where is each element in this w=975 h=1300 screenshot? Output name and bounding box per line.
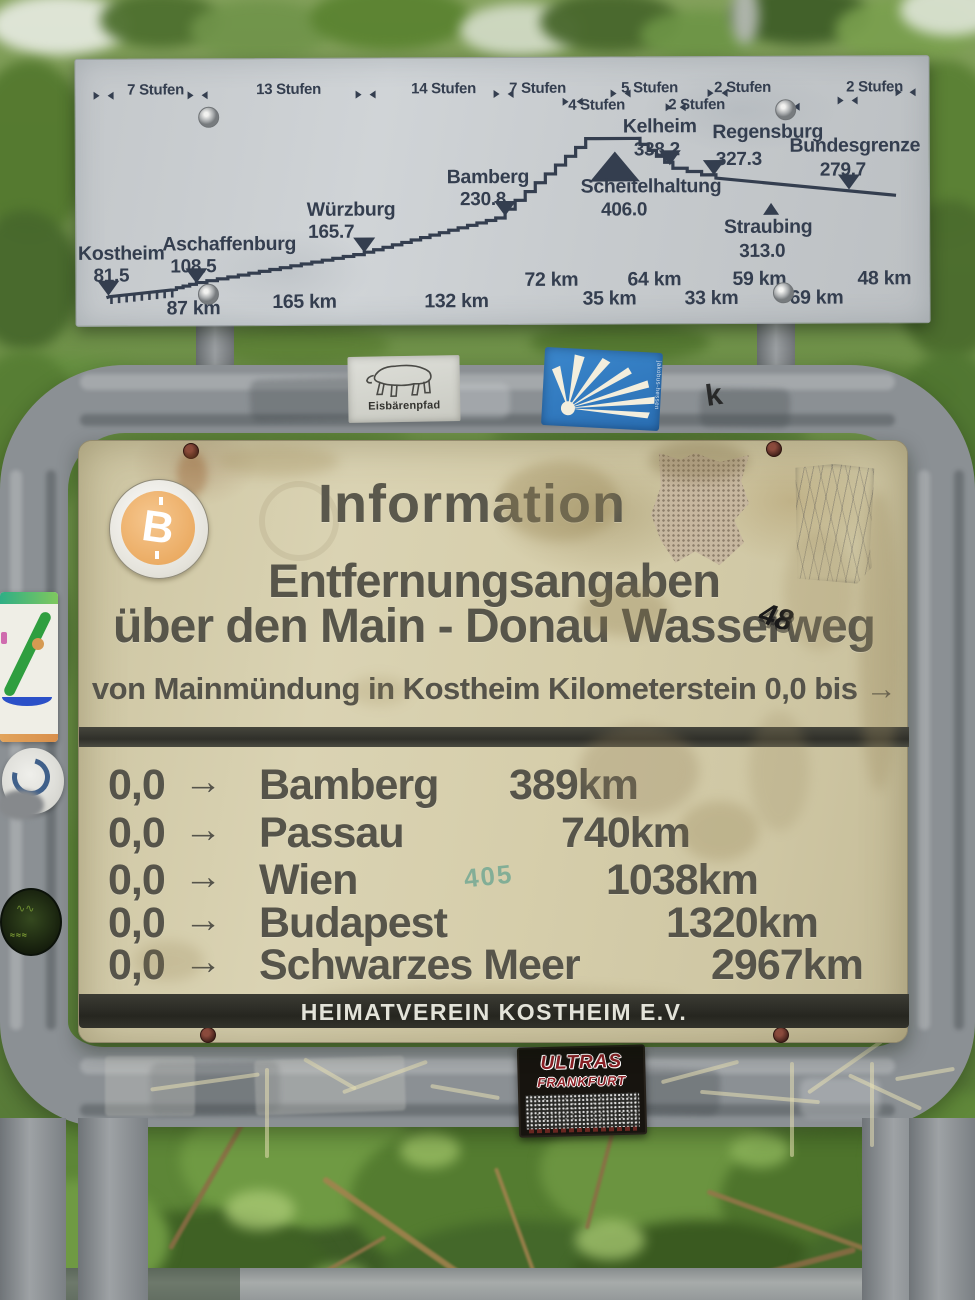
city-name: Bundesgrenze	[789, 134, 920, 157]
eisbaerenpfad-sticker: Eisbärenpfad	[347, 355, 460, 423]
arrow-icon: →	[184, 809, 221, 852]
city-marker-icon	[763, 203, 779, 215]
sign-leg-left	[78, 1118, 148, 1300]
elevation-profile-sign: 7 Stufen13 Stufen14 Stufen7 Stufen4 Stuf…	[74, 55, 930, 327]
outer-post-right	[909, 1118, 975, 1300]
city-elevation: 108.5	[170, 256, 217, 277]
information-sign: B Information Entfernungsangaben über de…	[78, 440, 908, 1043]
stufen-label: 7 Stufen	[127, 81, 184, 98]
sign-bolt	[773, 283, 793, 303]
distance-km-label: 69 km	[790, 287, 844, 309]
trail-marker-sticker	[0, 592, 58, 742]
green-stamp: 405	[463, 859, 515, 895]
stufen-label: 4 Stufen	[568, 96, 625, 113]
torn-area	[0, 790, 44, 820]
city-name: Kelheim	[623, 115, 697, 137]
distance-value: 389km	[509, 761, 638, 810]
sign-bolt	[776, 100, 796, 120]
arrow-icon: →	[184, 761, 221, 804]
distance-km-label: 72 km	[524, 269, 578, 291]
city-marker-icon	[353, 238, 375, 253]
footer-band: HEIMATVEREIN KOSTHEIM E.V.	[79, 994, 909, 1028]
table-row: 0,0→Bamberg389km	[79, 761, 909, 807]
sticker-squiggle: ∿∿	[16, 902, 34, 915]
crowd-photo	[525, 1093, 640, 1130]
distance-km-label: 132 km	[424, 290, 488, 312]
section-marker-icon	[94, 92, 100, 100]
section-marker-icon	[108, 92, 114, 100]
km-zero-value: 0,0	[108, 941, 165, 990]
sign-bolt	[199, 107, 219, 127]
stufen-label: 2 Stufen	[668, 96, 725, 113]
destination-name: Bamberg	[259, 761, 438, 810]
foliage-blob	[400, 1132, 460, 1168]
photo-stage: 7 Stufen13 Stufen14 Stufen7 Stufen4 Stuf…	[0, 0, 975, 1300]
stufen-label: 14 Stufen	[411, 80, 476, 97]
city-elevation: 406.0	[601, 199, 647, 220]
table-row: 0,0→Passau740km	[79, 809, 909, 855]
stufen-label: 13 Stufen	[256, 81, 321, 98]
table-row: 0,0→Budapest1320km	[79, 899, 909, 945]
table-row: 0,0→Schwarzes Meer2967km	[79, 941, 909, 987]
ultras-line2: FRANKFURT	[520, 1072, 644, 1090]
city-elevation: 338.2	[634, 139, 680, 160]
city-name: Würzburg	[307, 198, 396, 220]
km-zero-value: 0,0	[108, 856, 165, 905]
city-elevation: 165.7	[308, 222, 354, 243]
destination-name: Passau	[259, 809, 404, 858]
city-name: Aschaffenburg	[162, 233, 296, 256]
green-swoosh	[2, 610, 52, 698]
foliage-blob	[225, 1190, 295, 1230]
distance-km-label: 48 km	[857, 267, 911, 289]
section-marker-icon	[188, 91, 194, 99]
city-name: Scheitelhaltung	[581, 175, 722, 198]
distance-km-label: 33 km	[685, 287, 739, 309]
section-marker-icon	[494, 90, 500, 98]
trail-sticker-band	[0, 592, 58, 604]
distance-km-label: 165 km	[272, 291, 336, 313]
km-zero-value: 0,0	[108, 761, 165, 810]
arrow-icon: →	[184, 941, 221, 984]
section-marker-icon	[202, 91, 208, 99]
city-elevation: 279.7	[820, 159, 866, 180]
section-marker-icon	[852, 96, 858, 104]
city-name: Straubing	[724, 216, 812, 238]
distance-table: 0,0→Bamberg389km0,0→Passau740km0,0→Wien1…	[79, 441, 909, 1044]
section-marker-icon	[910, 88, 916, 96]
sticker-squiggle2: ≈≈≈	[10, 930, 28, 940]
foliage-blob	[730, 1132, 790, 1168]
distance-value: 2967km	[711, 941, 863, 990]
trail-sticker-edge	[0, 734, 58, 742]
orange-dot	[32, 638, 44, 650]
pink-mark	[1, 632, 7, 644]
city-name: Bamberg	[447, 166, 530, 188]
distance-value: 740km	[561, 809, 690, 858]
foliage-blob	[190, 0, 330, 60]
ultras-line1: ULTRAS	[519, 1050, 644, 1075]
torn-round-sticker	[2, 748, 64, 814]
eisbaerenpfad-label: Eisbärenpfad	[348, 399, 460, 413]
arrow-icon: →	[184, 899, 221, 942]
scallop-shell-icon	[541, 347, 663, 431]
stufen-label: 7 Stufen	[509, 80, 566, 97]
distance-km-label: 35 km	[583, 287, 637, 309]
sign-bolt	[198, 284, 218, 304]
stufen-label: 2 Stufen	[846, 78, 903, 95]
section-marker-icon	[370, 91, 376, 99]
destination-name: Wien	[259, 856, 357, 905]
blue-wave	[2, 688, 52, 706]
footer-text: HEIMATVEREIN KOSTHEIM E.V.	[79, 999, 909, 1026]
dark-round-sticker: ∿∿ ≈≈≈	[0, 888, 62, 956]
destination-name: Schwarzes Meer	[259, 941, 580, 990]
graffiti-k-mark: k	[703, 376, 738, 420]
foliage-blob	[310, 0, 470, 50]
polar-bear-icon	[362, 359, 447, 400]
jakobsweg-shell-sticker: jakobus-hessen	[541, 347, 663, 431]
distance-value: 1038km	[606, 856, 758, 905]
outer-post-left	[0, 1118, 66, 1300]
city-elevation: 230.8	[460, 189, 506, 210]
section-marker-icon	[838, 97, 844, 105]
elevation-profile-diagram: 7 Stufen13 Stufen14 Stufen7 Stufen4 Stuf…	[75, 56, 931, 328]
foliage-blob	[0, 210, 80, 350]
km-zero-value: 0,0	[108, 809, 165, 858]
ultras-frankfurt-sticker: ULTRAS FRANKFURT	[517, 1044, 647, 1137]
city-name: Kostheim	[78, 242, 165, 264]
arrow-icon: →	[184, 856, 221, 899]
distance-km-label: 64 km	[627, 268, 681, 290]
section-marker-icon	[356, 91, 362, 99]
city-elevation: 81.5	[93, 266, 130, 287]
city-elevation: 313.0	[739, 241, 785, 262]
city-elevation: 327.3	[716, 149, 762, 170]
